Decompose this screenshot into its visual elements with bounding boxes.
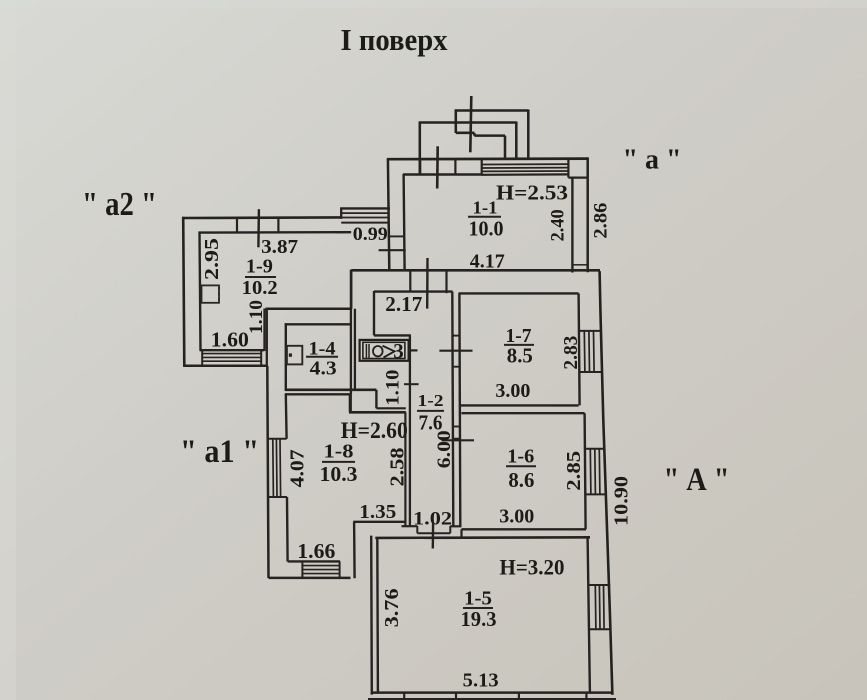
svg-text:5.13: 5.13 <box>463 670 499 692</box>
svg-text:8.6: 8.6 <box>508 468 534 492</box>
svg-text:1-9: 1-9 <box>246 256 273 278</box>
svg-text:2.95: 2.95 <box>201 238 223 280</box>
svg-text:Н=2.60: Н=2.60 <box>341 418 408 443</box>
svg-text:10.0: 10.0 <box>469 217 504 241</box>
svg-text:3.87: 3.87 <box>261 236 298 258</box>
svg-text:10.3: 10.3 <box>320 462 358 486</box>
svg-text:1.10: 1.10 <box>383 370 404 406</box>
svg-text:1-1: 1-1 <box>473 198 498 218</box>
svg-text:3: 3 <box>393 339 404 363</box>
svg-text:Н=2.53: Н=2.53 <box>496 180 568 204</box>
svg-text:2.86: 2.86 <box>590 203 611 239</box>
svg-text:1.60: 1.60 <box>211 327 249 351</box>
svg-text:10.90: 10.90 <box>611 476 633 526</box>
svg-text:1.35: 1.35 <box>359 501 396 523</box>
svg-text:4.3: 4.3 <box>310 357 337 379</box>
svg-text:1.66: 1.66 <box>297 539 335 563</box>
svg-text:" а2 ": " а2 " <box>82 186 157 223</box>
svg-text:" А ": " А " <box>664 462 730 498</box>
svg-text:2.58: 2.58 <box>387 448 409 487</box>
svg-text:0.99: 0.99 <box>353 225 388 245</box>
svg-text:1-5: 1-5 <box>464 587 492 609</box>
svg-text:І поверх: І поверх <box>341 22 448 57</box>
svg-text:2.85: 2.85 <box>563 451 585 491</box>
svg-text:19.3: 19.3 <box>461 607 497 631</box>
svg-text:8.5: 8.5 <box>507 344 533 368</box>
svg-text:3.00: 3.00 <box>499 505 534 527</box>
svg-text:3.76: 3.76 <box>381 588 403 627</box>
svg-text:2.17: 2.17 <box>385 292 422 316</box>
svg-text:" а1 ": " а1 " <box>180 434 259 470</box>
svg-text:1-2: 1-2 <box>418 391 444 410</box>
svg-text:Н=3.20: Н=3.20 <box>500 555 565 580</box>
svg-text:" а ": " а " <box>623 144 682 176</box>
svg-text:10.2: 10.2 <box>242 277 278 299</box>
svg-text:2.40: 2.40 <box>548 209 569 241</box>
svg-text:3.00: 3.00 <box>495 380 530 402</box>
svg-text:1-6: 1-6 <box>507 446 534 468</box>
svg-text:4.07: 4.07 <box>287 449 309 487</box>
svg-text:1-8: 1-8 <box>324 441 354 463</box>
svg-text:1.10: 1.10 <box>246 300 267 334</box>
svg-text:6.00: 6.00 <box>434 430 455 468</box>
